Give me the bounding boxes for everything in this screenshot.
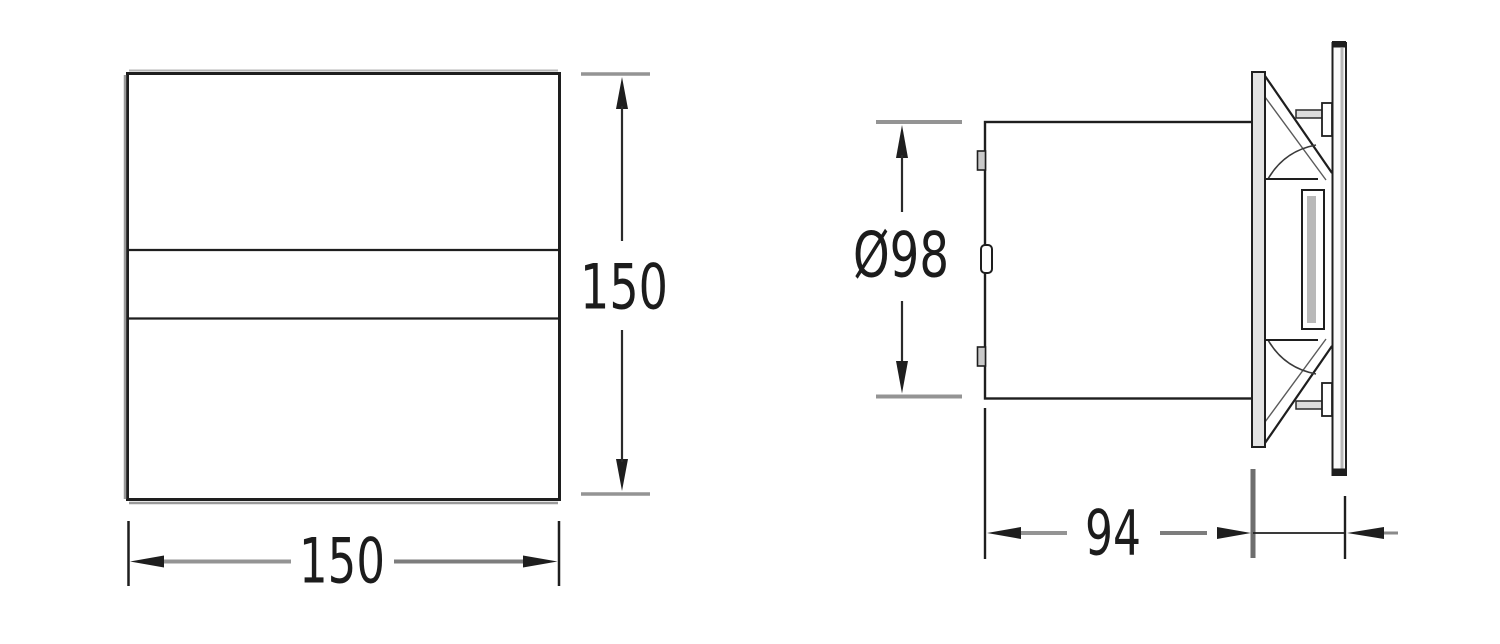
arrow-left-icon — [130, 556, 164, 568]
arrow-right-icon — [523, 556, 558, 568]
rear-clip-top — [978, 151, 986, 170]
front-height-dimension: 150 — [580, 74, 668, 494]
bell-curve-bottom — [1268, 340, 1316, 374]
side-diameter-dimension: Ø98 — [853, 122, 962, 397]
arrow-up-icon — [616, 77, 628, 109]
glass-panel-cap-bottom — [1332, 469, 1346, 476]
front-width-dimension: 150 — [129, 521, 560, 598]
arrow-down-icon — [616, 459, 628, 491]
front-height-label: 150 — [580, 251, 668, 324]
arrow-down-icon — [896, 361, 908, 394]
rear-latch — [981, 245, 992, 273]
front-view — [125, 71, 560, 504]
glass-front-panel — [1333, 43, 1347, 475]
arrow-up-icon — [896, 125, 908, 158]
fan-dimension-drawing: 150 150 — [0, 0, 1500, 644]
arrow-right-icon — [1217, 527, 1251, 539]
glass-panel-cap-top — [1332, 41, 1346, 48]
arrow-outside-left-icon — [1347, 527, 1384, 539]
side-depth-label: 94 — [1085, 497, 1141, 570]
fan-body-outline — [985, 122, 1253, 399]
technical-drawing-canvas: 150 150 — [0, 0, 1500, 644]
bell-curve-top — [1268, 145, 1316, 179]
arrow-left-icon — [987, 527, 1021, 539]
side-view — [978, 41, 1347, 475]
mounting-plate — [1252, 72, 1265, 447]
fan-internals — [1265, 76, 1332, 443]
motor-hub-core — [1307, 196, 1316, 323]
panel-bracket-bottom — [1322, 383, 1332, 416]
front-width-label: 150 — [299, 525, 385, 598]
rear-clip-bottom — [978, 347, 986, 366]
side-diameter-label: Ø98 — [853, 219, 949, 292]
front-cover-outline — [128, 74, 560, 500]
panel-bracket-top — [1322, 103, 1332, 136]
